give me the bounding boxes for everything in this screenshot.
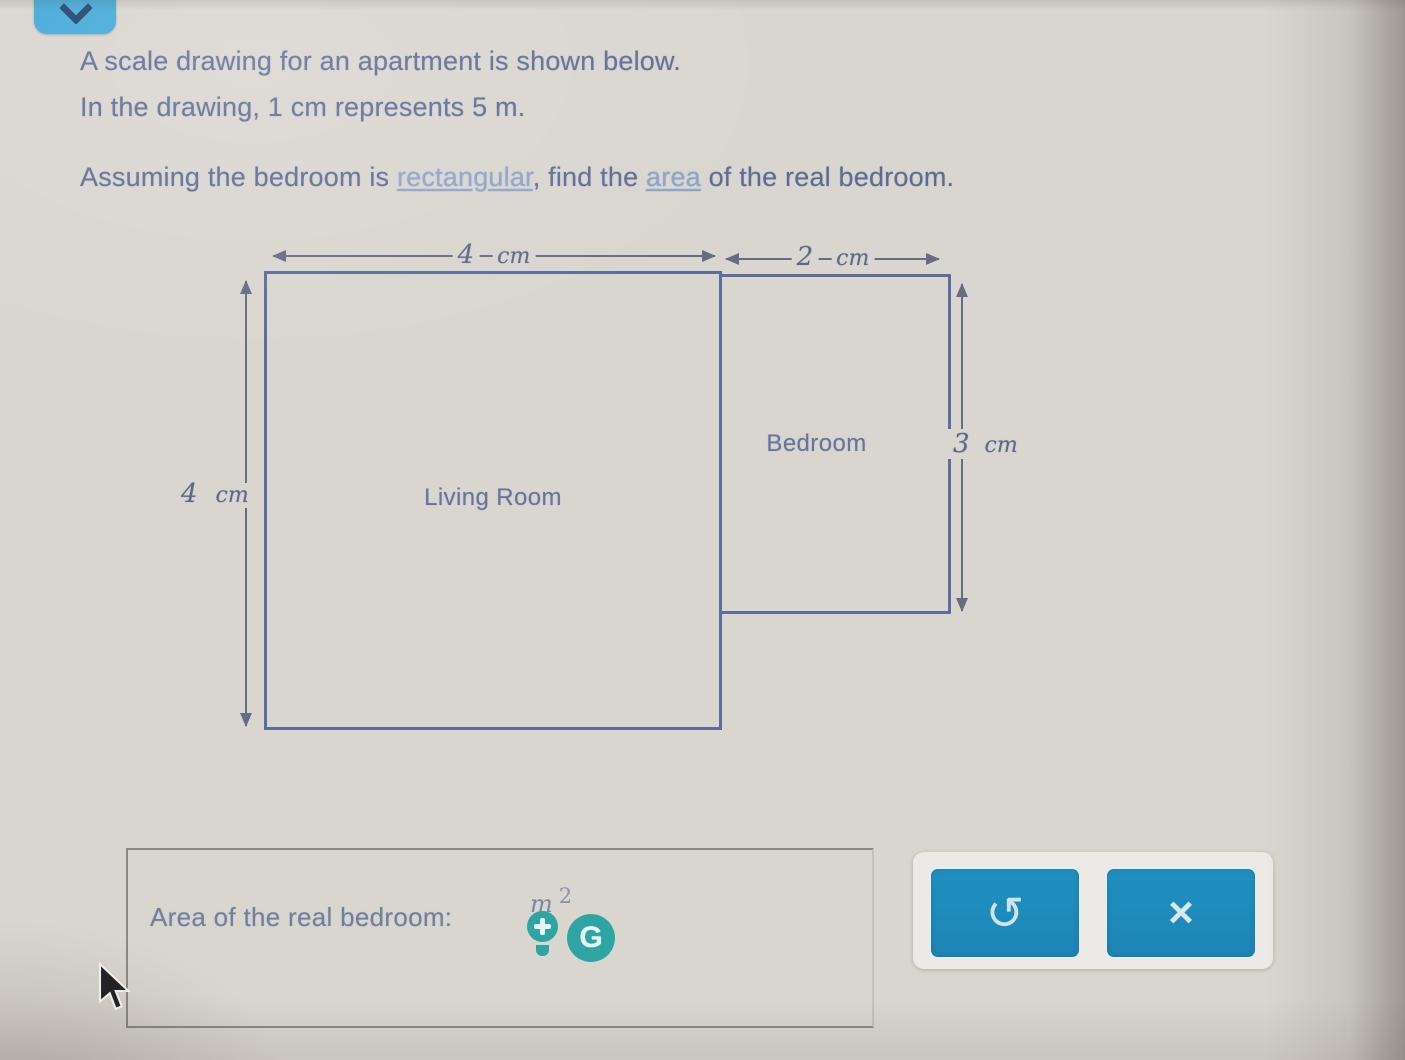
bedroom-label: Bedroom [729,430,904,458]
lightbulb-plus-icon [534,924,551,929]
multiply-icon: × [1168,888,1194,938]
dim-living-width-unit: cm [492,244,535,269]
link-rectangular[interactable]: rectangular [397,162,533,192]
problem-line-3-text-mid: , find the [533,162,646,192]
dim-living-height-unit: cm [211,483,254,508]
problem-line-3-text-pre: Assuming the bedroom is [80,162,397,192]
dim-bedroom-width-value: 2 [792,242,819,272]
chevron-down-icon [59,0,93,25]
dim-bedroom-height-unit: cm [985,433,1018,458]
lightbulb-base [536,945,549,956]
multiply-button[interactable]: × [1107,869,1255,957]
dim-living-width-value: 4 [453,240,480,270]
undo-button[interactable]: ↺ [931,869,1079,957]
dim-label-living-width: 4cm [453,240,536,270]
link-area[interactable]: area [646,162,701,192]
keypad-panel: ↺ × [913,852,1273,969]
problem-line-2: In the drawing, 1 cm represents 5 m. [80,92,525,123]
collapse-button[interactable] [34,0,116,34]
answer-box [126,848,874,1028]
living-room-label: Living Room [264,484,722,512]
dim-label-living-height: 4cm [181,479,254,509]
hint-lightbulb-icon[interactable] [527,911,559,959]
undo-icon: ↺ [986,886,1025,940]
dim-living-height-value: 4 [181,479,198,509]
dim-label-bedroom-height: 3cm [948,429,1018,459]
g-circle-icon[interactable]: G [567,914,615,962]
problem-line-3: Assuming the bedroom is rectangular, fin… [80,162,954,193]
answer-label: Area of the real bedroom: [150,902,452,933]
problem-line-3-text-post: of the real bedroom. [701,162,954,192]
dim-bedroom-width-unit: cm [831,246,874,271]
answer-unit-exponent: 2 [559,884,572,908]
dim-label-bedroom-width: 2cm [792,242,875,272]
dim-bedroom-height-value: 3 [948,429,975,459]
problem-line-1: A scale drawing for an apartment is show… [80,46,681,77]
mouse-cursor [97,962,133,1019]
